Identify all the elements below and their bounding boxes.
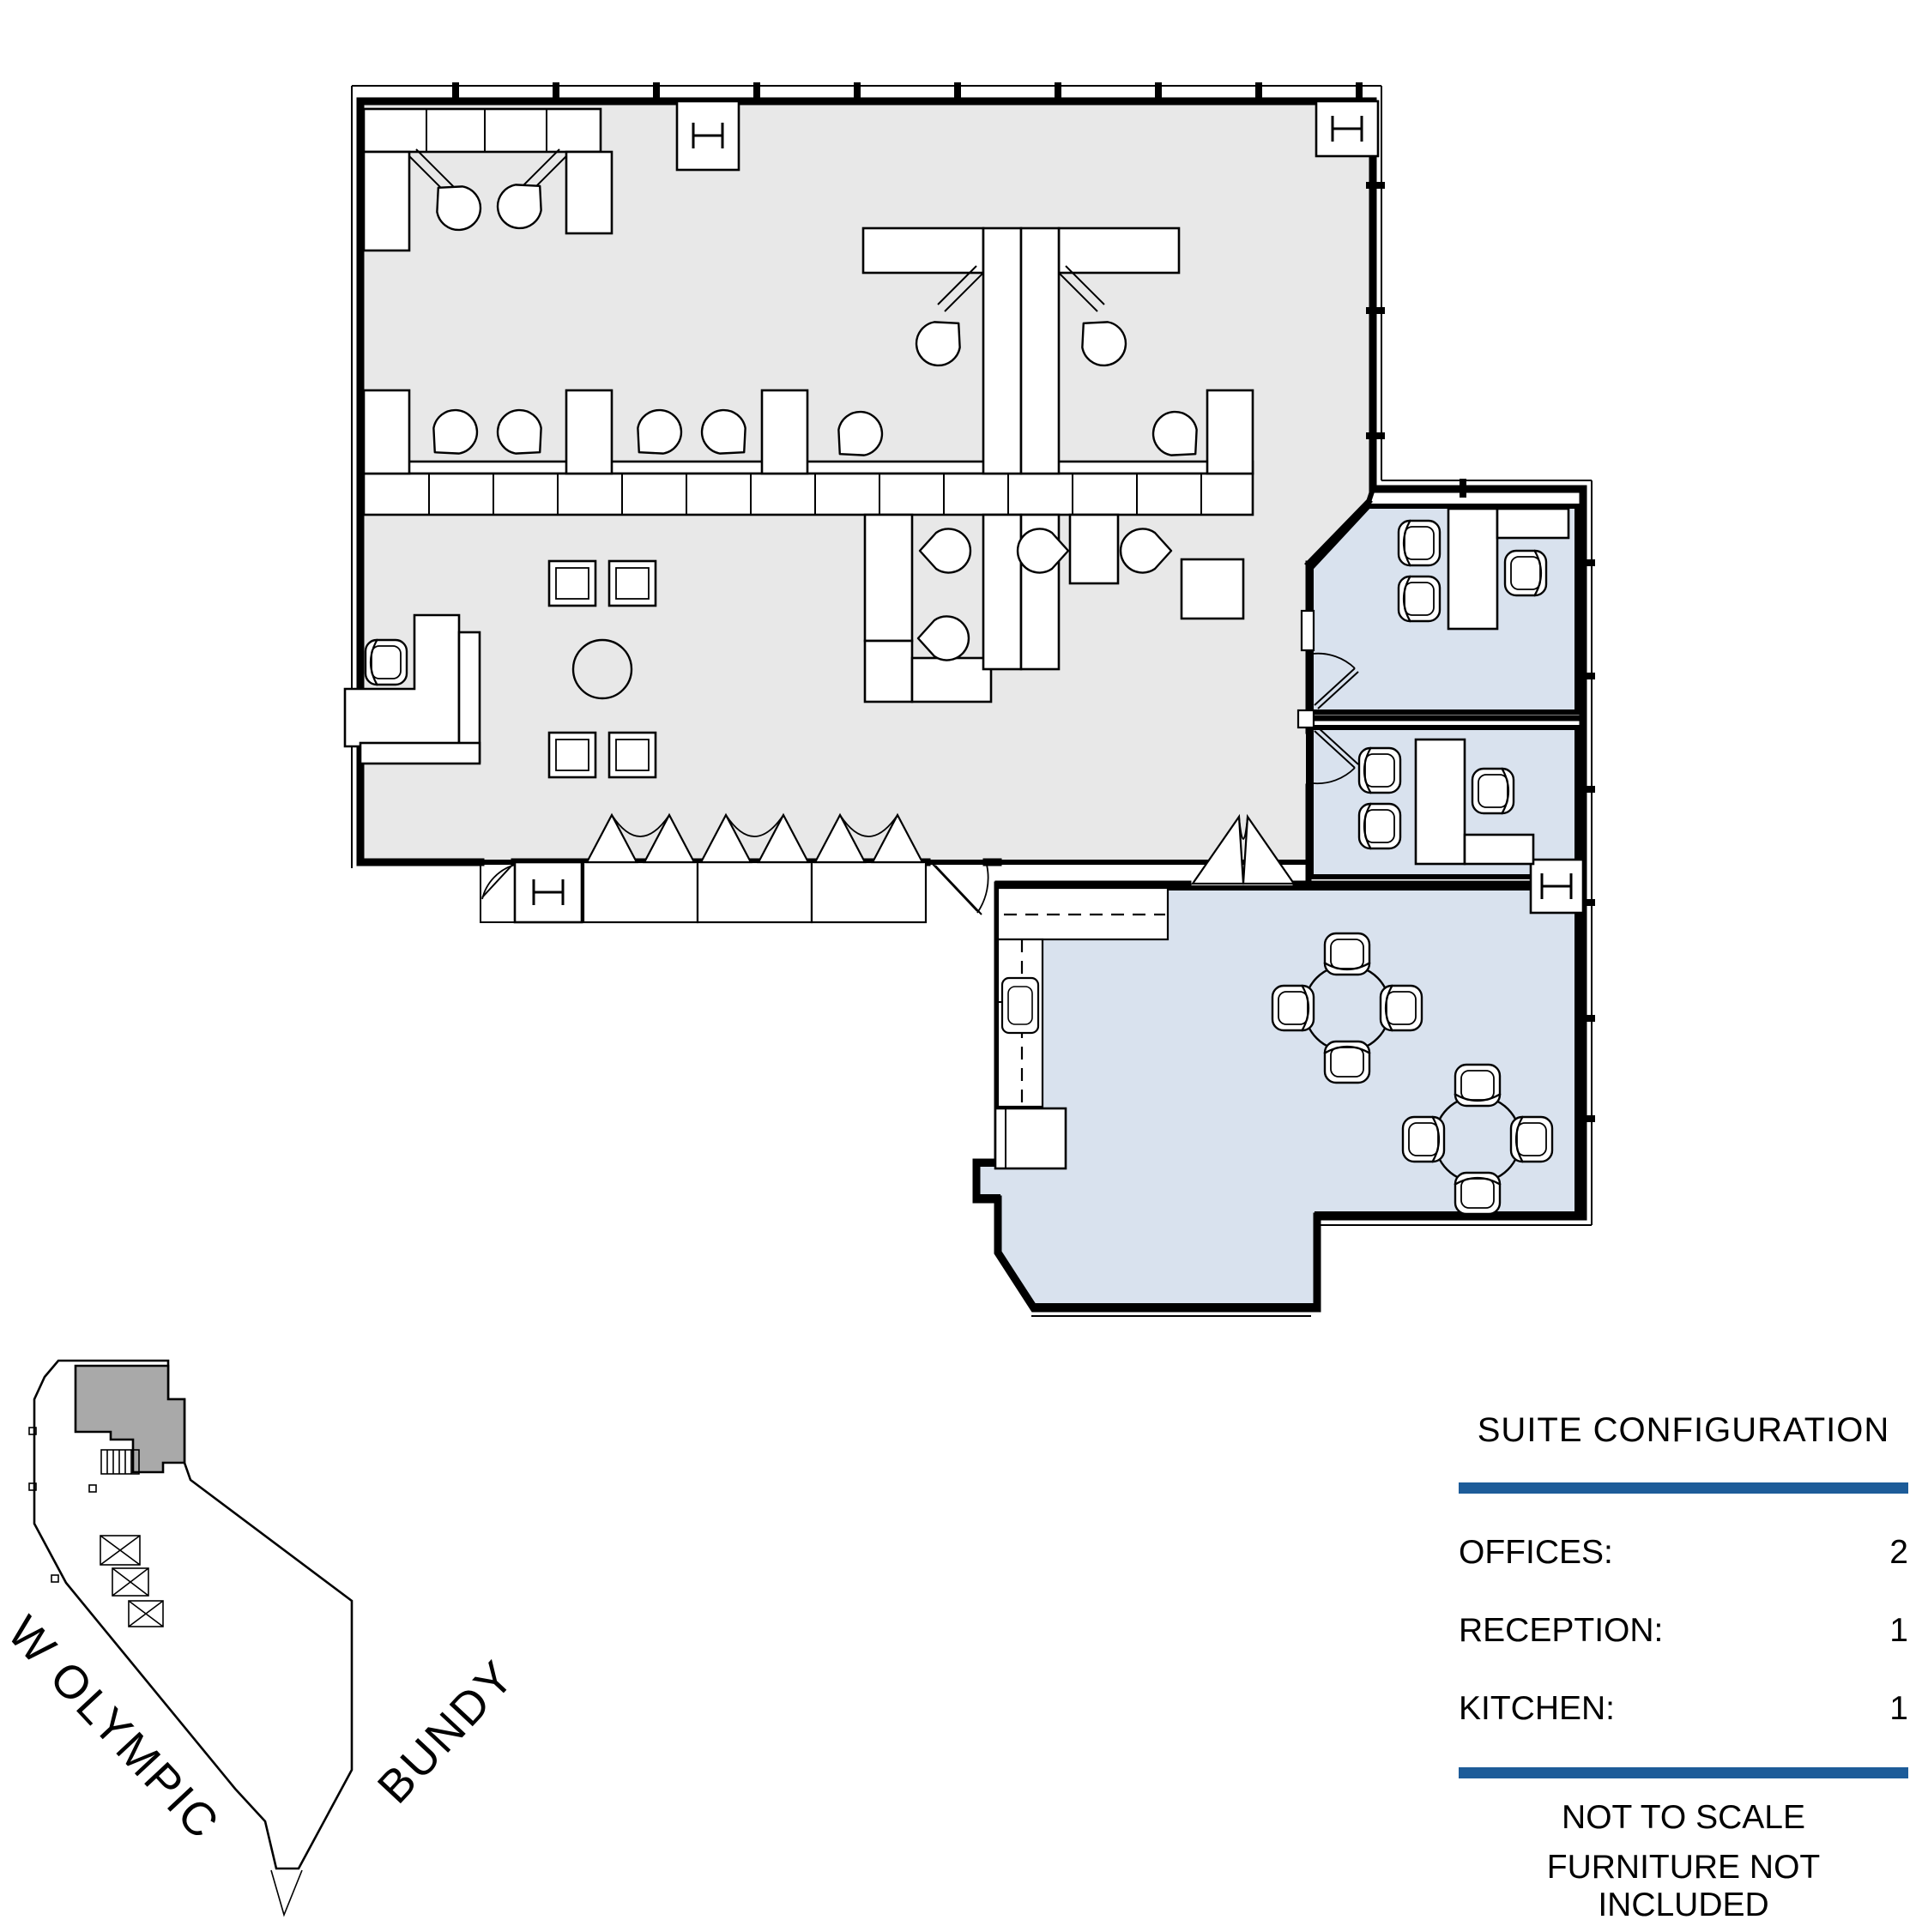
desk-return xyxy=(1497,509,1568,538)
legend-divider xyxy=(1459,1482,1908,1494)
note-not-to-scale: NOT TO SCALE xyxy=(1459,1799,1908,1837)
guest-chair xyxy=(1399,520,1440,566)
wall-post xyxy=(1298,710,1314,728)
legend-value: 1 xyxy=(1889,1690,1908,1728)
note-furniture: FURNITURE NOT INCLUDED xyxy=(1459,1849,1908,1924)
sink-icon xyxy=(996,978,1038,1033)
legend-rows: OFFICES: 2 RECEPTION: 1 KITCHEN: 1 xyxy=(1459,1534,1908,1728)
sidelight-window xyxy=(1302,611,1314,650)
break-chair xyxy=(1324,1041,1370,1083)
column-icon xyxy=(677,101,739,170)
door-swing xyxy=(931,862,988,915)
column-icon xyxy=(515,862,582,922)
lounge-chair xyxy=(549,733,595,777)
break-chair xyxy=(1381,985,1422,1031)
break-chair xyxy=(1403,1116,1444,1162)
break-chair xyxy=(1511,1116,1552,1162)
legend-panel: SUITE CONFIGURATION OFFICES: 2 RECEPTION… xyxy=(1459,1411,1908,1924)
legend-label: OFFICES: xyxy=(1459,1534,1613,1572)
legend-row-kitchen: KITCHEN: 1 xyxy=(1459,1690,1908,1728)
lounge-chair xyxy=(549,561,595,606)
column-icon xyxy=(1531,860,1583,913)
break-chair xyxy=(1272,985,1314,1031)
legend-label: RECEPTION: xyxy=(1459,1612,1663,1650)
legend-label: KITCHEN: xyxy=(1459,1690,1615,1728)
floor-plan-sheet: SUITE CONFIGURATION OFFICES: 2 RECEPTION… xyxy=(0,0,1922,1932)
guest-chair xyxy=(1359,803,1400,849)
column-icon xyxy=(1316,101,1378,156)
legend-value: 1 xyxy=(1889,1612,1908,1650)
refrigerator xyxy=(995,1108,1066,1168)
break-chair xyxy=(1454,1173,1501,1214)
guest-chair xyxy=(1359,747,1400,794)
legend-divider xyxy=(1459,1767,1908,1778)
task-chair xyxy=(1472,768,1514,814)
lounge-chair xyxy=(609,733,656,777)
desk xyxy=(1448,509,1497,629)
guest-chair xyxy=(1399,576,1440,622)
desk xyxy=(1416,740,1465,864)
break-chair xyxy=(1454,1065,1501,1106)
lounge-chair xyxy=(609,561,656,606)
legend-value: 2 xyxy=(1889,1534,1908,1572)
desk-return xyxy=(1465,835,1533,864)
task-chair xyxy=(1505,550,1546,596)
legend-row-offices: OFFICES: 2 xyxy=(1459,1534,1908,1572)
door-swing xyxy=(480,862,515,922)
task-chair xyxy=(366,639,407,685)
legend-title: SUITE CONFIGURATION xyxy=(1459,1411,1908,1450)
legend-row-reception: RECEPTION: 1 xyxy=(1459,1612,1908,1650)
break-chair xyxy=(1324,933,1370,975)
legend-notes: NOT TO SCALE FURNITURE NOT INCLUDED xyxy=(1459,1799,1908,1924)
